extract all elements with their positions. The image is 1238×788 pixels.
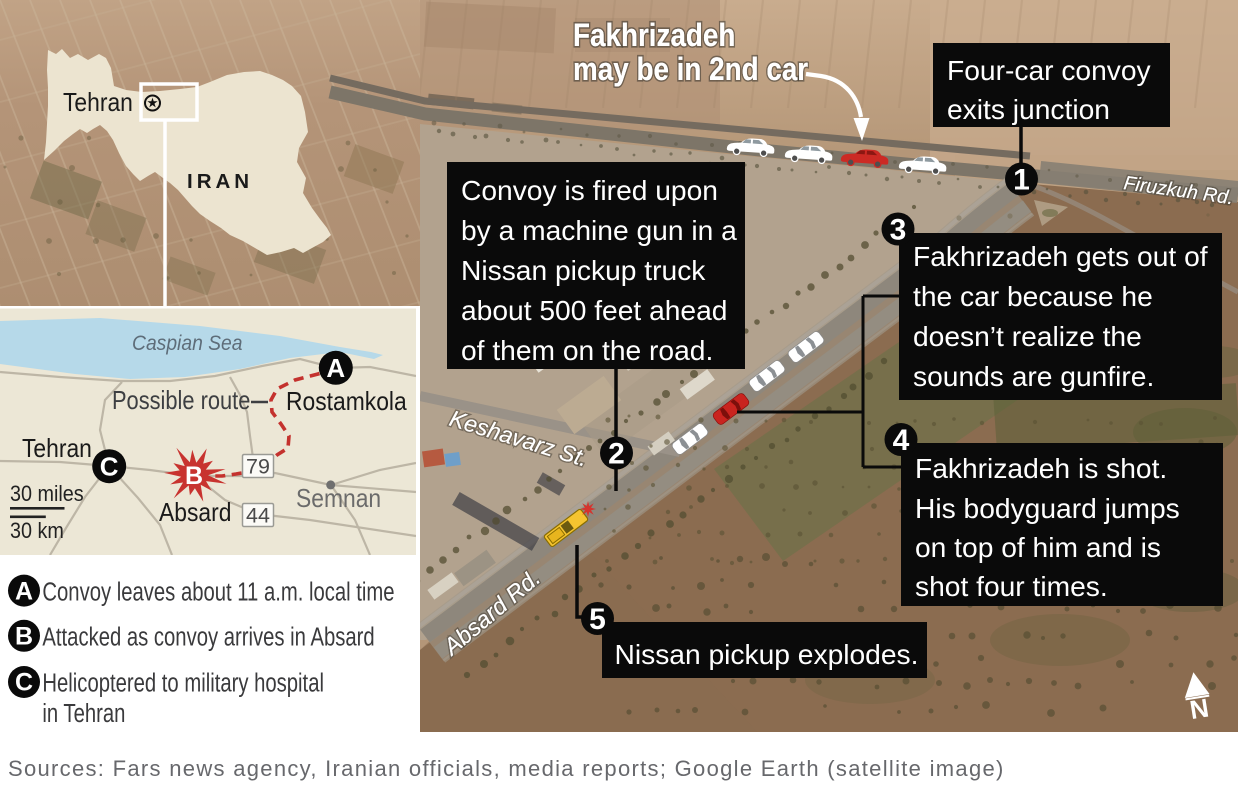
svg-text:2: 2 — [608, 438, 625, 471]
svg-text:IRAN: IRAN — [187, 170, 253, 193]
svg-text:5: 5 — [589, 603, 606, 636]
svg-text:Convoy leaves about 11 a.m. lo: Convoy leaves about 11 a.m. local time — [42, 577, 394, 606]
svg-text:30 miles: 30 miles — [10, 482, 84, 506]
svg-text:79: 79 — [246, 455, 270, 479]
svg-text:Rostamkola: Rostamkola — [286, 388, 407, 417]
svg-text:shot four times.: shot four times. — [915, 570, 1108, 602]
svg-text:may be in 2nd car: may be in 2nd car — [573, 52, 808, 87]
svg-text:Caspian Sea: Caspian Sea — [132, 332, 243, 355]
svg-text:by a machine gun in a: by a machine gun in a — [461, 214, 737, 246]
svg-text:Tehran: Tehran — [22, 435, 92, 464]
svg-text:Tehran: Tehran — [63, 89, 133, 118]
svg-text:in Tehran: in Tehran — [42, 698, 125, 727]
svg-text:Attacked as convoy arrives in: Attacked as convoy arrives in Absard — [42, 622, 374, 651]
svg-text:Helicoptered to military hospi: Helicoptered to military hospital — [42, 668, 324, 697]
svg-text:Four-car convoy: Four-car convoy — [947, 54, 1152, 86]
svg-text:Nissan pickup explodes.: Nissan pickup explodes. — [615, 638, 919, 670]
svg-text:B: B — [185, 462, 203, 490]
svg-text:about 500 feet ahead: about 500 feet ahead — [461, 294, 727, 326]
svg-text:30 km: 30 km — [10, 519, 64, 543]
svg-text:B: B — [15, 623, 33, 651]
svg-text:Sources: Fars news agency, Ira: Sources: Fars news agency, Iranian offic… — [8, 756, 1005, 781]
svg-text:on top of him and is: on top of him and is — [915, 531, 1161, 563]
svg-text:A: A — [326, 353, 345, 383]
svg-text:A: A — [15, 578, 33, 606]
svg-text:1: 1 — [1013, 164, 1030, 197]
svg-text:Fakhrizadeh is shot.: Fakhrizadeh is shot. — [915, 452, 1167, 484]
svg-text:Nissan pickup truck: Nissan pickup truck — [461, 254, 706, 286]
svg-text:Fakhrizadeh: Fakhrizadeh — [573, 18, 735, 53]
svg-text:the car because he: the car because he — [913, 280, 1153, 312]
svg-text:C: C — [15, 669, 33, 697]
svg-text:doesn’t realize the: doesn’t realize the — [913, 320, 1142, 352]
svg-text:of them on the road.: of them on the road. — [461, 334, 713, 366]
svg-text:Absard: Absard — [159, 499, 231, 528]
svg-text:exits junction: exits junction — [947, 93, 1110, 125]
svg-text:3: 3 — [890, 214, 907, 247]
svg-text:His bodyguard jumps: His bodyguard jumps — [915, 492, 1180, 524]
svg-text:Convoy is fired upon: Convoy is fired upon — [461, 174, 718, 206]
svg-text:44: 44 — [246, 504, 270, 528]
svg-text:Semnan: Semnan — [296, 485, 381, 514]
svg-text:Possible route: Possible route — [112, 386, 250, 415]
svg-text:sounds are gunfire.: sounds are gunfire. — [913, 360, 1154, 392]
svg-text:4: 4 — [893, 424, 910, 457]
svg-text:Fakhrizadeh gets out of: Fakhrizadeh gets out of — [913, 240, 1208, 272]
svg-text:C: C — [100, 452, 119, 482]
